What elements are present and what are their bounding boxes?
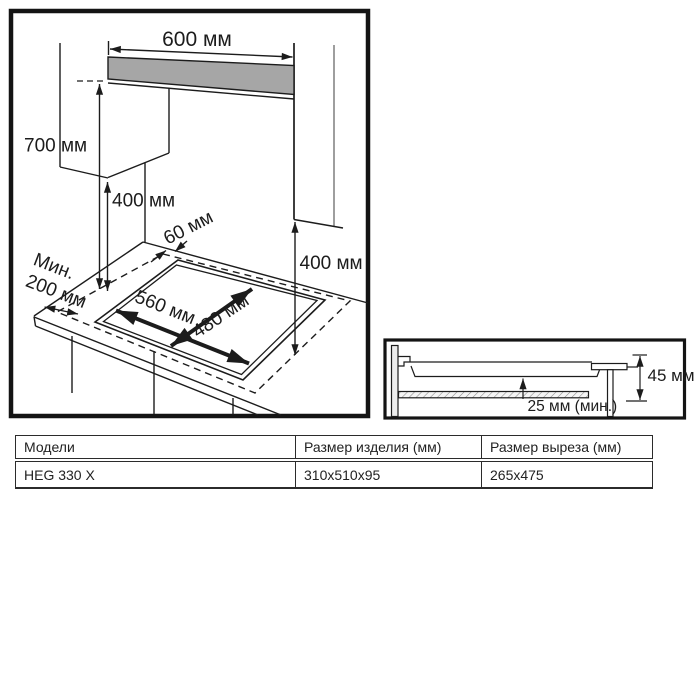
product-size-cell: 310x510x95 [296,460,482,488]
side-wall [392,346,399,417]
header-cutout-size: Размер выреза (мм) [482,436,653,461]
main-installation-diagram [11,11,368,416]
header-product-size: Размер изделия (мм) [296,436,482,461]
bottom-shelf [399,392,589,398]
dim-label-cabinet-clearance-right: 400 мм [300,253,363,274]
dim-label-cabinet-clearance-left: 400 мм [112,191,175,212]
spec-table: Модели Размер изделия (мм) Размер выреза… [15,435,653,489]
spec-table-header-row: Модели Размер изделия (мм) Размер выреза… [16,436,653,461]
diagram-canvas: 600 мм 700 мм 400 мм 60 мм Мин. 200 мм 5… [0,0,700,700]
cutout-size-cell: 265x475 [482,460,653,488]
installation-diagram-page: 600 мм 700 мм 400 мм 60 мм Мин. 200 мм 5… [0,0,700,700]
dim-label-build-in-height: 45 мм [648,366,695,385]
model-cell: HEG 330 X [16,460,296,488]
header-models: Модели [16,436,296,461]
dim-label-hood-clearance: 700 мм [24,136,87,157]
dim-label-min-bottom-gap: 25 мм (мин.) [528,398,618,415]
dim-label-hood-width: 600 мм [162,28,232,51]
spec-table-row: HEG 330 X 310x510x95 265x475 [16,460,653,488]
